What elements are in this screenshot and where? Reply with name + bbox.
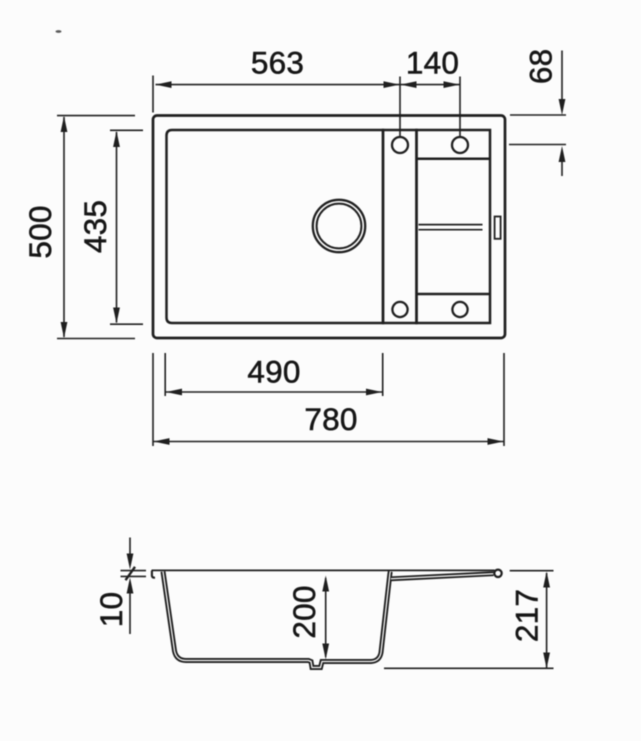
- svg-text:10: 10: [93, 592, 129, 627]
- svg-text:563: 563: [251, 45, 304, 81]
- svg-text:500: 500: [22, 205, 58, 258]
- svg-text:68: 68: [522, 49, 558, 84]
- svg-text:217: 217: [508, 589, 544, 642]
- svg-text:200: 200: [286, 585, 322, 638]
- svg-text:490: 490: [247, 354, 300, 390]
- svg-text:435: 435: [77, 200, 113, 253]
- svg-text:140: 140: [406, 45, 459, 81]
- svg-text:780: 780: [304, 401, 357, 437]
